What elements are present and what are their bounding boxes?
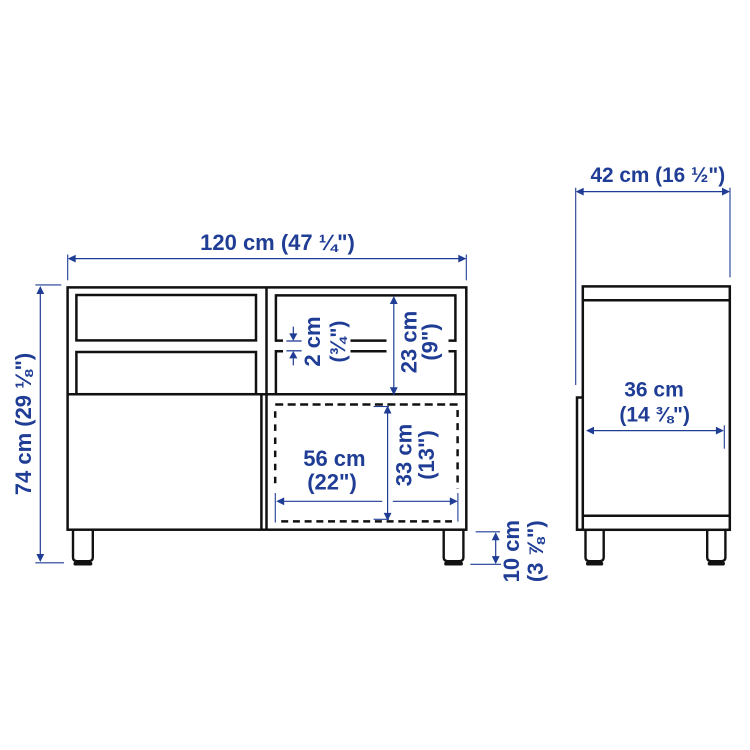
svg-text:120 cm (47 ¼"): 120 cm (47 ¼") — [200, 230, 355, 255]
svg-text:2 cm: 2 cm — [300, 316, 325, 366]
svg-text:10 cm: 10 cm — [499, 520, 524, 582]
svg-text:(3 ⅞"): (3 ⅞") — [523, 520, 548, 582]
svg-text:(¾"): (¾") — [326, 320, 350, 362]
svg-text:(13"): (13") — [414, 430, 439, 480]
svg-text:(14 ⅜"): (14 ⅜") — [619, 403, 690, 426]
svg-text:74 cm (29 ⅛"): 74 cm (29 ⅛") — [11, 353, 36, 496]
svg-text:42 cm (16 ½"): 42 cm (16 ½") — [590, 164, 725, 187]
svg-text:33 cm: 33 cm — [391, 424, 416, 486]
svg-text:56 cm: 56 cm — [303, 446, 365, 471]
svg-text:(22"): (22") — [307, 470, 357, 495]
svg-text:36 cm: 36 cm — [624, 378, 684, 401]
svg-text:(9"): (9") — [418, 323, 443, 360]
